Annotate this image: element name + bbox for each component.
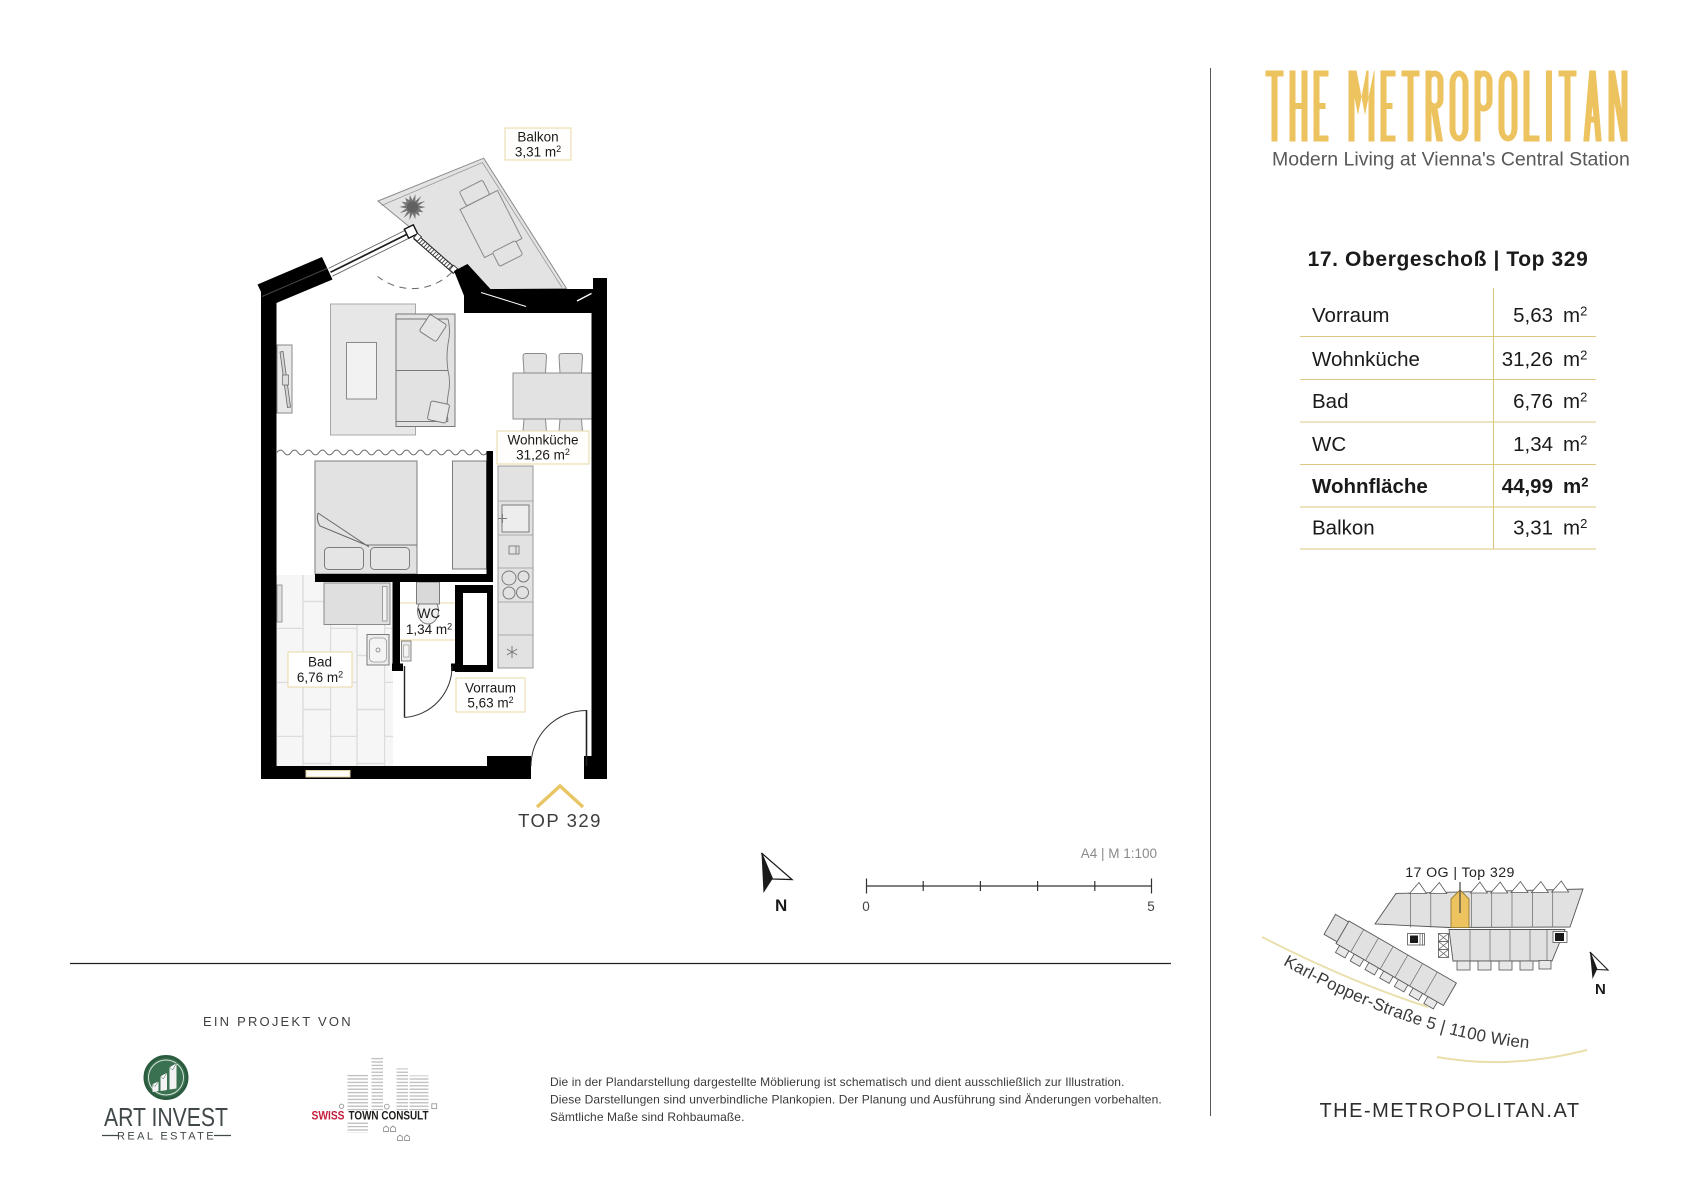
svg-text:N: N (1595, 981, 1606, 998)
svg-text:0: 0 (862, 899, 870, 914)
svg-text:A4 | M 1:100: A4 | M 1:100 (1081, 846, 1157, 861)
svg-text:Balkon: Balkon (1312, 517, 1375, 540)
svg-text:Wohnküche: Wohnküche (507, 433, 578, 448)
svg-text:WC: WC (418, 606, 441, 621)
svg-text:44,99: 44,99 (1502, 475, 1553, 498)
svg-text:Bad: Bad (1312, 390, 1348, 413)
svg-text:Wohnküche: Wohnküche (1312, 348, 1420, 371)
svg-text:Balkon: Balkon (517, 130, 558, 145)
svg-text:EIN PROJEKT VON: EIN PROJEKT VON (203, 1014, 353, 1029)
svg-text:REAL ESTATE: REAL ESTATE (117, 1131, 216, 1143)
svg-text:Sämtliche Maße sind Rohbaumaße: Sämtliche Maße sind Rohbaumaße. (550, 1110, 745, 1124)
svg-text:ART INVEST: ART INVEST (104, 1102, 228, 1132)
svg-text:6,76: 6,76 (1513, 390, 1553, 413)
svg-text:3,31 m2: 3,31 m2 (515, 144, 561, 160)
svg-text:5,63 m2: 5,63 m2 (467, 695, 513, 711)
svg-text:3,31: 3,31 (1513, 517, 1553, 540)
svg-text:TOP 329: TOP 329 (518, 810, 602, 831)
svg-text:1,34 m2: 1,34 m2 (406, 622, 452, 638)
svg-text:Wohnfläche: Wohnfläche (1312, 475, 1428, 498)
svg-text:Vorraum: Vorraum (465, 681, 516, 696)
svg-text:Bad: Bad (308, 655, 332, 670)
svg-text:5,63: 5,63 (1513, 304, 1553, 327)
svg-text:Vorraum: Vorraum (1312, 304, 1389, 327)
svg-text:Die in der Plandarstellung dar: Die in der Plandarstellung dargestellte … (550, 1075, 1125, 1089)
svg-text:TOWN CONSULT: TOWN CONSULT (349, 1109, 430, 1123)
svg-text:N: N (775, 896, 787, 915)
svg-text:31,26 m2: 31,26 m2 (516, 447, 570, 463)
svg-text:17 OG | Top 329: 17 OG | Top 329 (1405, 865, 1515, 881)
svg-text:31,26: 31,26 (1502, 348, 1553, 371)
svg-text:WC: WC (1312, 433, 1346, 456)
svg-text:Diese Darstellungen sind unver: Diese Darstellungen sind unverbindliche … (550, 1093, 1162, 1107)
svg-text:17. Obergeschoß | Top 329: 17. Obergeschoß | Top 329 (1308, 248, 1589, 271)
svg-text:5: 5 (1147, 899, 1155, 914)
svg-text:1,34: 1,34 (1513, 433, 1553, 456)
svg-text:Modern Living at Vienna's Cent: Modern Living at Vienna's Central Statio… (1272, 149, 1630, 171)
svg-text:THE-METROPOLITAN.AT: THE-METROPOLITAN.AT (1319, 1100, 1580, 1122)
svg-text:6,76 m2: 6,76 m2 (297, 670, 343, 686)
svg-text:SWISS: SWISS (312, 1109, 345, 1123)
